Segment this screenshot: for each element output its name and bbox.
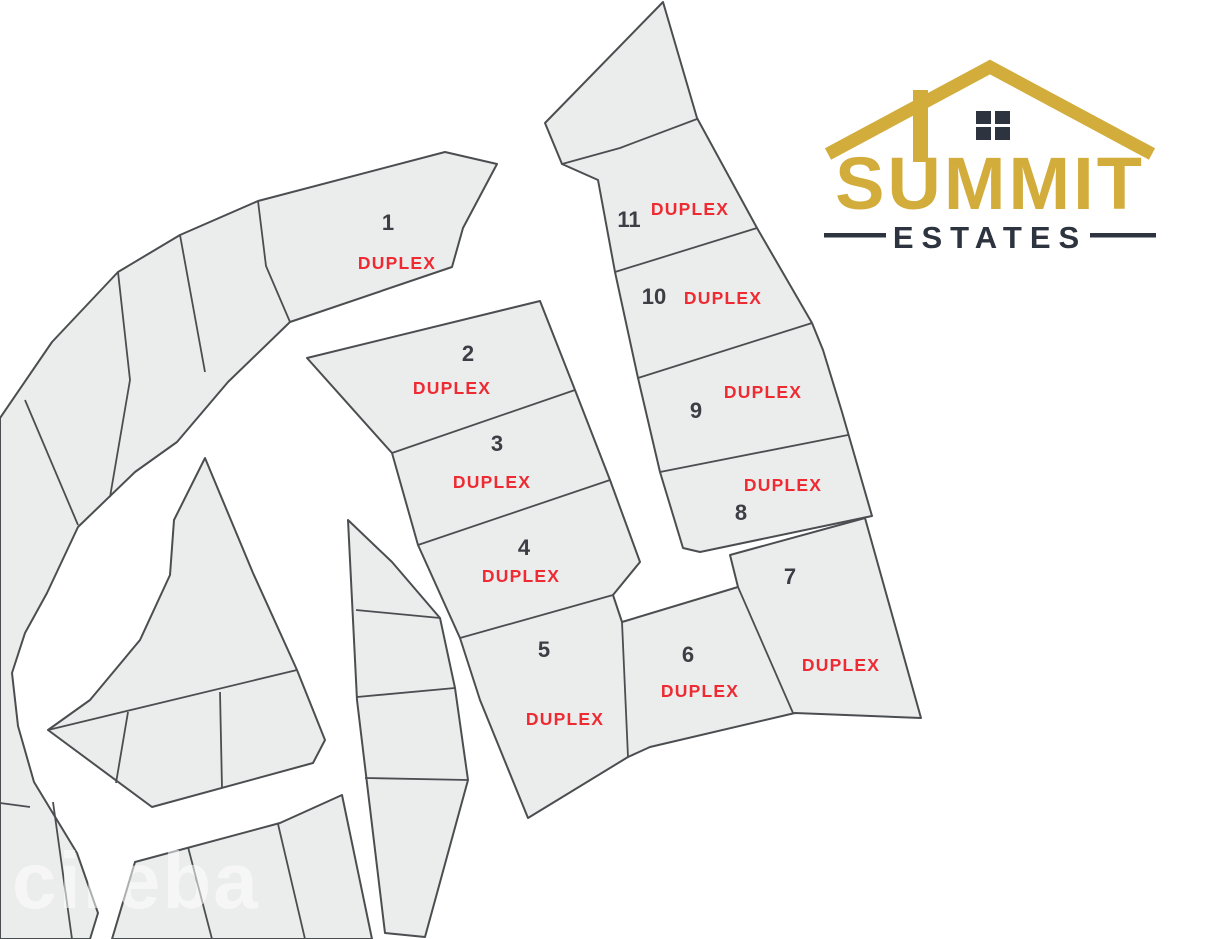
- watermark-text: cireba: [12, 836, 260, 925]
- lot-5-number: 5: [538, 637, 550, 662]
- lot-1-number: 1: [382, 210, 394, 235]
- lot-6-number: 6: [682, 642, 694, 667]
- lot-4-number: 4: [518, 535, 531, 560]
- lot-8-duplex-label: DUPLEX: [744, 475, 822, 495]
- site-plan-page: 1 DUPLEX 2 DUPLEX 3 DUPLEX 4 DUPLEX 5 DU…: [0, 0, 1216, 939]
- lot-8-number: 8: [735, 500, 747, 525]
- lot-1-duplex-label: DUPLEX: [358, 253, 436, 273]
- lot-9-number: 9: [690, 398, 702, 423]
- subdivision-plat-map: 1 DUPLEX 2 DUPLEX 3 DUPLEX 4 DUPLEX 5 DU…: [0, 0, 1216, 939]
- lot-2-duplex-label: DUPLEX: [413, 378, 491, 398]
- brand-divider-right: [1090, 233, 1156, 238]
- lot-7-number: 7: [784, 564, 796, 589]
- lot-3-duplex-label: DUPLEX: [453, 472, 531, 492]
- brand-name: SUMMIT: [835, 142, 1145, 225]
- brand-divider-left: [824, 233, 886, 238]
- lot-3-number: 3: [491, 431, 503, 456]
- lot-9-duplex-label: DUPLEX: [724, 382, 802, 402]
- lot-10-duplex-label: DUPLEX: [684, 288, 762, 308]
- lot-11-duplex-label: DUPLEX: [651, 199, 729, 219]
- lot-6-duplex-label: DUPLEX: [661, 681, 739, 701]
- lot-2-number: 2: [462, 341, 474, 366]
- lot-4-duplex-label: DUPLEX: [482, 566, 560, 586]
- lot-5-duplex-label: DUPLEX: [526, 709, 604, 729]
- lot-11-number: 11: [617, 207, 640, 232]
- lot-7-duplex-label: DUPLEX: [802, 655, 880, 675]
- lot-10-number: 10: [642, 284, 666, 309]
- brand-subtitle: ESTATES: [893, 220, 1087, 255]
